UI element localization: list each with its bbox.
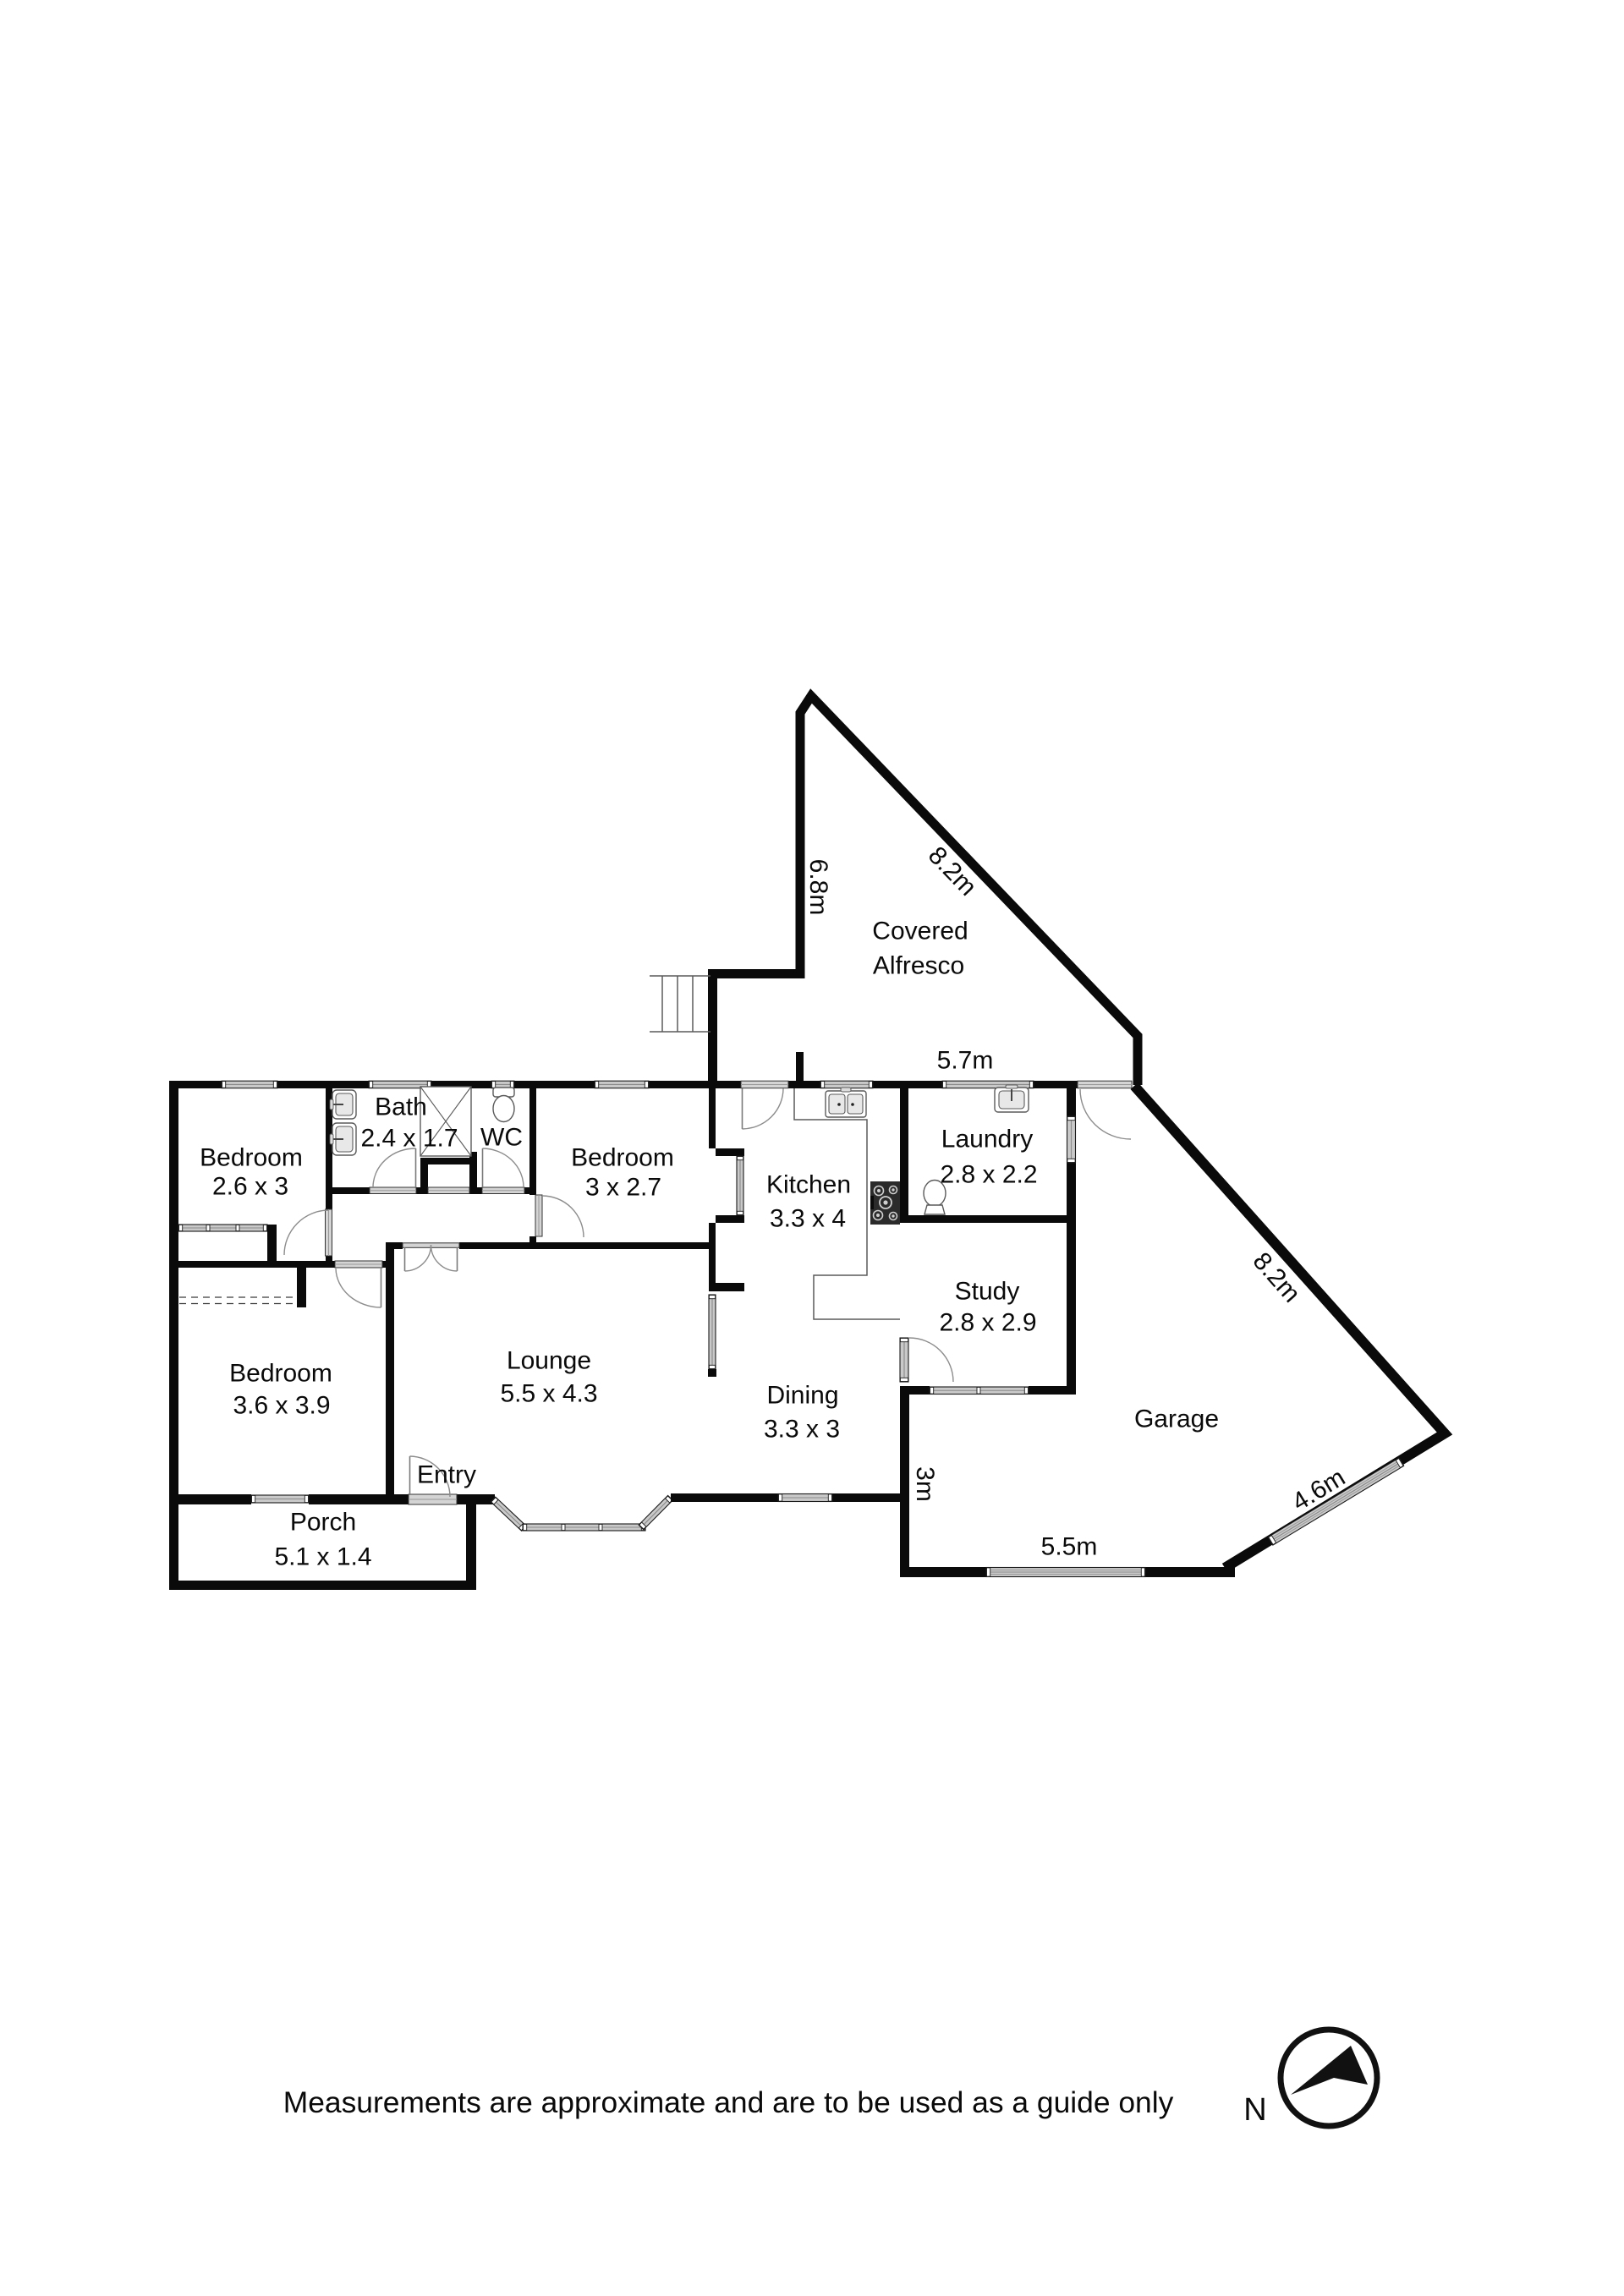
svg-text:3 x 2.7: 3 x 2.7 [585, 1174, 661, 1202]
svg-text:Bedroom: Bedroom [229, 1360, 332, 1388]
svg-text:N: N [1243, 2092, 1266, 2128]
svg-text:Study: Study [955, 1278, 1020, 1306]
svg-text:8.2m: 8.2m [923, 841, 982, 901]
svg-text:Garage: Garage [1134, 1406, 1219, 1433]
svg-text:5.5m: 5.5m [1041, 1533, 1098, 1561]
svg-text:Alfresco: Alfresco [873, 952, 964, 980]
svg-text:3.3 x 3: 3.3 x 3 [764, 1416, 840, 1444]
svg-text:Bedroom: Bedroom [200, 1144, 303, 1172]
svg-text:3m: 3m [911, 1466, 939, 1502]
svg-text:2.4 x 1.7: 2.4 x 1.7 [360, 1125, 458, 1153]
svg-text:Porch: Porch [290, 1509, 356, 1537]
svg-text:6.8m: 6.8m [804, 859, 832, 916]
svg-text:5.1 x 1.4: 5.1 x 1.4 [274, 1543, 371, 1571]
svg-text:8.2m: 8.2m [1248, 1247, 1306, 1308]
svg-text:3.6 x 3.9: 3.6 x 3.9 [233, 1392, 330, 1420]
svg-text:Bedroom: Bedroom [571, 1144, 674, 1172]
svg-text:5.7m: 5.7m [937, 1047, 994, 1075]
svg-text:Lounge: Lounge [507, 1347, 591, 1375]
svg-text:WC: WC [480, 1124, 523, 1152]
svg-text:Kitchen: Kitchen [766, 1171, 851, 1199]
svg-text:Covered: Covered [872, 918, 968, 945]
svg-text:Measurements are approximate a: Measurements are approximate and are to … [283, 2085, 1174, 2119]
svg-text:2.8 x 2.2: 2.8 x 2.2 [940, 1161, 1037, 1189]
svg-text:Dining: Dining [766, 1382, 838, 1410]
svg-text:Laundry: Laundry [941, 1126, 1033, 1153]
svg-text:2.8 x 2.9: 2.8 x 2.9 [939, 1309, 1036, 1337]
svg-text:5.5 x 4.3: 5.5 x 4.3 [500, 1380, 597, 1408]
svg-text:Bath: Bath [375, 1093, 427, 1121]
svg-text:Entry: Entry [417, 1461, 476, 1489]
svg-text:2.6 x 3: 2.6 x 3 [212, 1173, 288, 1201]
svg-text:3.3 x 4: 3.3 x 4 [770, 1205, 846, 1233]
